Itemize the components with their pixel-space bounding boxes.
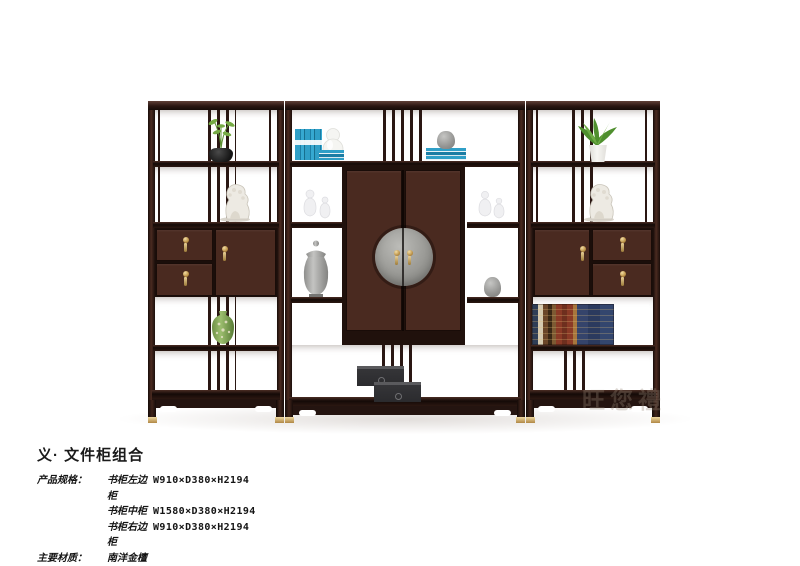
specs-label-spacer xyxy=(37,504,107,520)
left-cabinet-right-post xyxy=(277,101,284,401)
blue-books-vertical xyxy=(295,129,322,160)
right-cabinet-top-rail xyxy=(526,101,660,110)
gray-temple-jar xyxy=(301,240,331,297)
shelf xyxy=(531,345,655,351)
base-rail xyxy=(289,406,521,415)
brass-foot xyxy=(285,417,294,423)
left-cabinet xyxy=(148,101,284,423)
green-plant xyxy=(570,114,624,148)
spec-name: 书柜右边柜 xyxy=(107,520,153,551)
center-door-unit xyxy=(342,166,465,345)
right-cabinet-right-post xyxy=(653,101,660,401)
shelf xyxy=(152,390,280,399)
column-shelf xyxy=(291,222,343,228)
spec-name: 书柜左边柜 xyxy=(107,473,153,504)
right-cabinet-band xyxy=(533,228,653,297)
black-pot xyxy=(209,148,233,162)
drawer-pull xyxy=(182,237,190,253)
product-title: 义· 文件柜组合 xyxy=(37,444,256,465)
product-info: 义· 文件柜组合 产品规格： 书柜左边柜 W910×D380×H2194 书柜中… xyxy=(37,444,256,566)
leg xyxy=(148,400,156,417)
door-front xyxy=(534,229,590,296)
door-pull xyxy=(393,250,401,266)
brass-foot xyxy=(516,417,525,423)
leg xyxy=(285,400,293,417)
middle-cabinet-left-post xyxy=(285,101,292,401)
slat-screen-top xyxy=(383,110,427,161)
leg xyxy=(276,400,284,417)
spec-row: 书柜右边柜 W910×D380×H2194 xyxy=(37,520,256,551)
base-cutout xyxy=(538,406,555,412)
material-value: 南洋金檀 xyxy=(107,551,147,566)
column-shelf xyxy=(467,222,519,228)
drawer-pull xyxy=(619,271,627,287)
brass-foot xyxy=(148,417,157,423)
shelf xyxy=(531,222,655,228)
middle-cabinet-right-post xyxy=(518,101,525,401)
brass-foot xyxy=(526,417,535,423)
drawer-pull xyxy=(619,237,627,253)
spec-rows: 产品规格： 书柜左边柜 W910×D380×H2194 书柜中柜 W1580×D… xyxy=(37,473,256,566)
lion-statue xyxy=(218,181,252,222)
green-vase xyxy=(210,310,236,345)
middle-cabinet xyxy=(285,101,525,423)
column-shelf xyxy=(291,297,343,303)
spec-row: 主要材质： 南洋金檀 xyxy=(37,551,256,566)
shelf xyxy=(153,222,279,228)
plant-decor xyxy=(196,113,246,151)
black-box xyxy=(374,382,421,402)
round-medallion xyxy=(375,228,433,286)
blue-books-stack xyxy=(426,148,466,160)
spec-dims: W910×D380×H2194 xyxy=(153,473,249,504)
base-cutout xyxy=(160,406,177,412)
middle-cabinet-top-rail xyxy=(285,101,525,110)
door-pull xyxy=(579,246,587,262)
leg xyxy=(517,400,525,417)
material-label: 主要材质： xyxy=(37,551,107,566)
left-cabinet-band xyxy=(155,228,277,297)
white-glass-vases xyxy=(473,184,509,222)
shelf xyxy=(153,345,279,351)
cabinet-combination-photo xyxy=(148,101,660,423)
medallion-seam xyxy=(402,228,404,286)
lion-statue xyxy=(582,181,616,222)
right-cabinet-left-post xyxy=(526,101,533,401)
spec-name: 书柜中柜 xyxy=(107,504,153,520)
door-pull xyxy=(406,250,414,266)
column-shelf xyxy=(467,297,519,303)
left-cabinet-top-rail xyxy=(148,101,284,110)
base-cutout xyxy=(255,406,272,412)
small-gray-vase xyxy=(484,277,501,297)
brass-foot xyxy=(651,417,660,423)
spec-dims: W910×D380×H2194 xyxy=(153,520,249,551)
drawer-pull xyxy=(182,271,190,287)
spec-row: 产品规格： 书柜左边柜 W910×D380×H2194 xyxy=(37,473,256,504)
white-glass-vases xyxy=(297,182,337,222)
spec-dims: W1580×D380×H2194 xyxy=(153,504,256,520)
blue-books-stack xyxy=(319,150,344,160)
base-cutout xyxy=(299,410,316,416)
specs-label-spacer xyxy=(37,520,107,551)
left-cabinet-left-post xyxy=(148,101,155,401)
specs-label: 产品规格： xyxy=(37,473,107,504)
gray-jar xyxy=(437,131,455,149)
leg xyxy=(526,400,534,417)
door-pull xyxy=(221,246,229,262)
right-cabinet xyxy=(526,101,660,423)
watermark: 旺您禮 xyxy=(582,381,666,415)
catalog-page: 旺您禮 义· 文件柜组合 产品规格： 书柜左边柜 W910×D380×H2194… xyxy=(0,0,800,566)
door-front xyxy=(215,229,276,296)
brass-foot xyxy=(275,417,284,423)
spec-row: 书柜中柜 W1580×D380×H2194 xyxy=(37,504,256,520)
base-cutout xyxy=(494,410,511,416)
books-row xyxy=(532,304,614,345)
